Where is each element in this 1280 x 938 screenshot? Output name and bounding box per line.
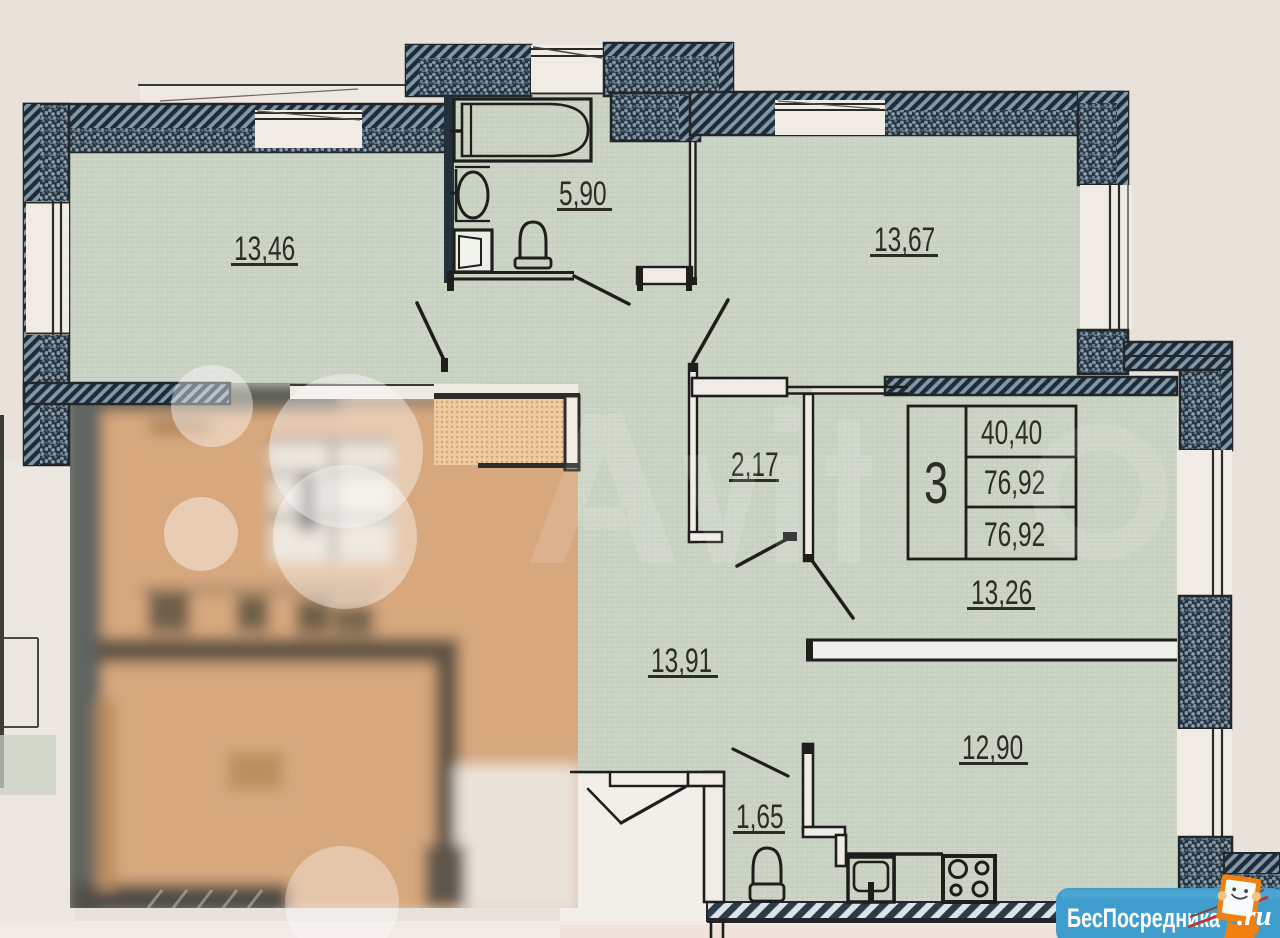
svg-text:40,40: 40,40 [981,414,1042,452]
svg-text:13,46: 13,46 [234,230,295,268]
svg-text:3: 3 [924,451,948,515]
svg-text:13,91: 13,91 [651,642,712,680]
svg-text:.ru: .ru [1237,900,1272,932]
svg-text:5,90: 5,90 [559,175,607,213]
svg-text:13,67: 13,67 [874,221,935,259]
svg-text:13,26: 13,26 [971,574,1032,612]
svg-text:12,90: 12,90 [962,729,1023,767]
svg-text:БесПосредника: БесПосредника [1067,904,1221,934]
svg-text:1,65: 1,65 [736,798,784,836]
svg-text:76,92: 76,92 [984,516,1045,554]
